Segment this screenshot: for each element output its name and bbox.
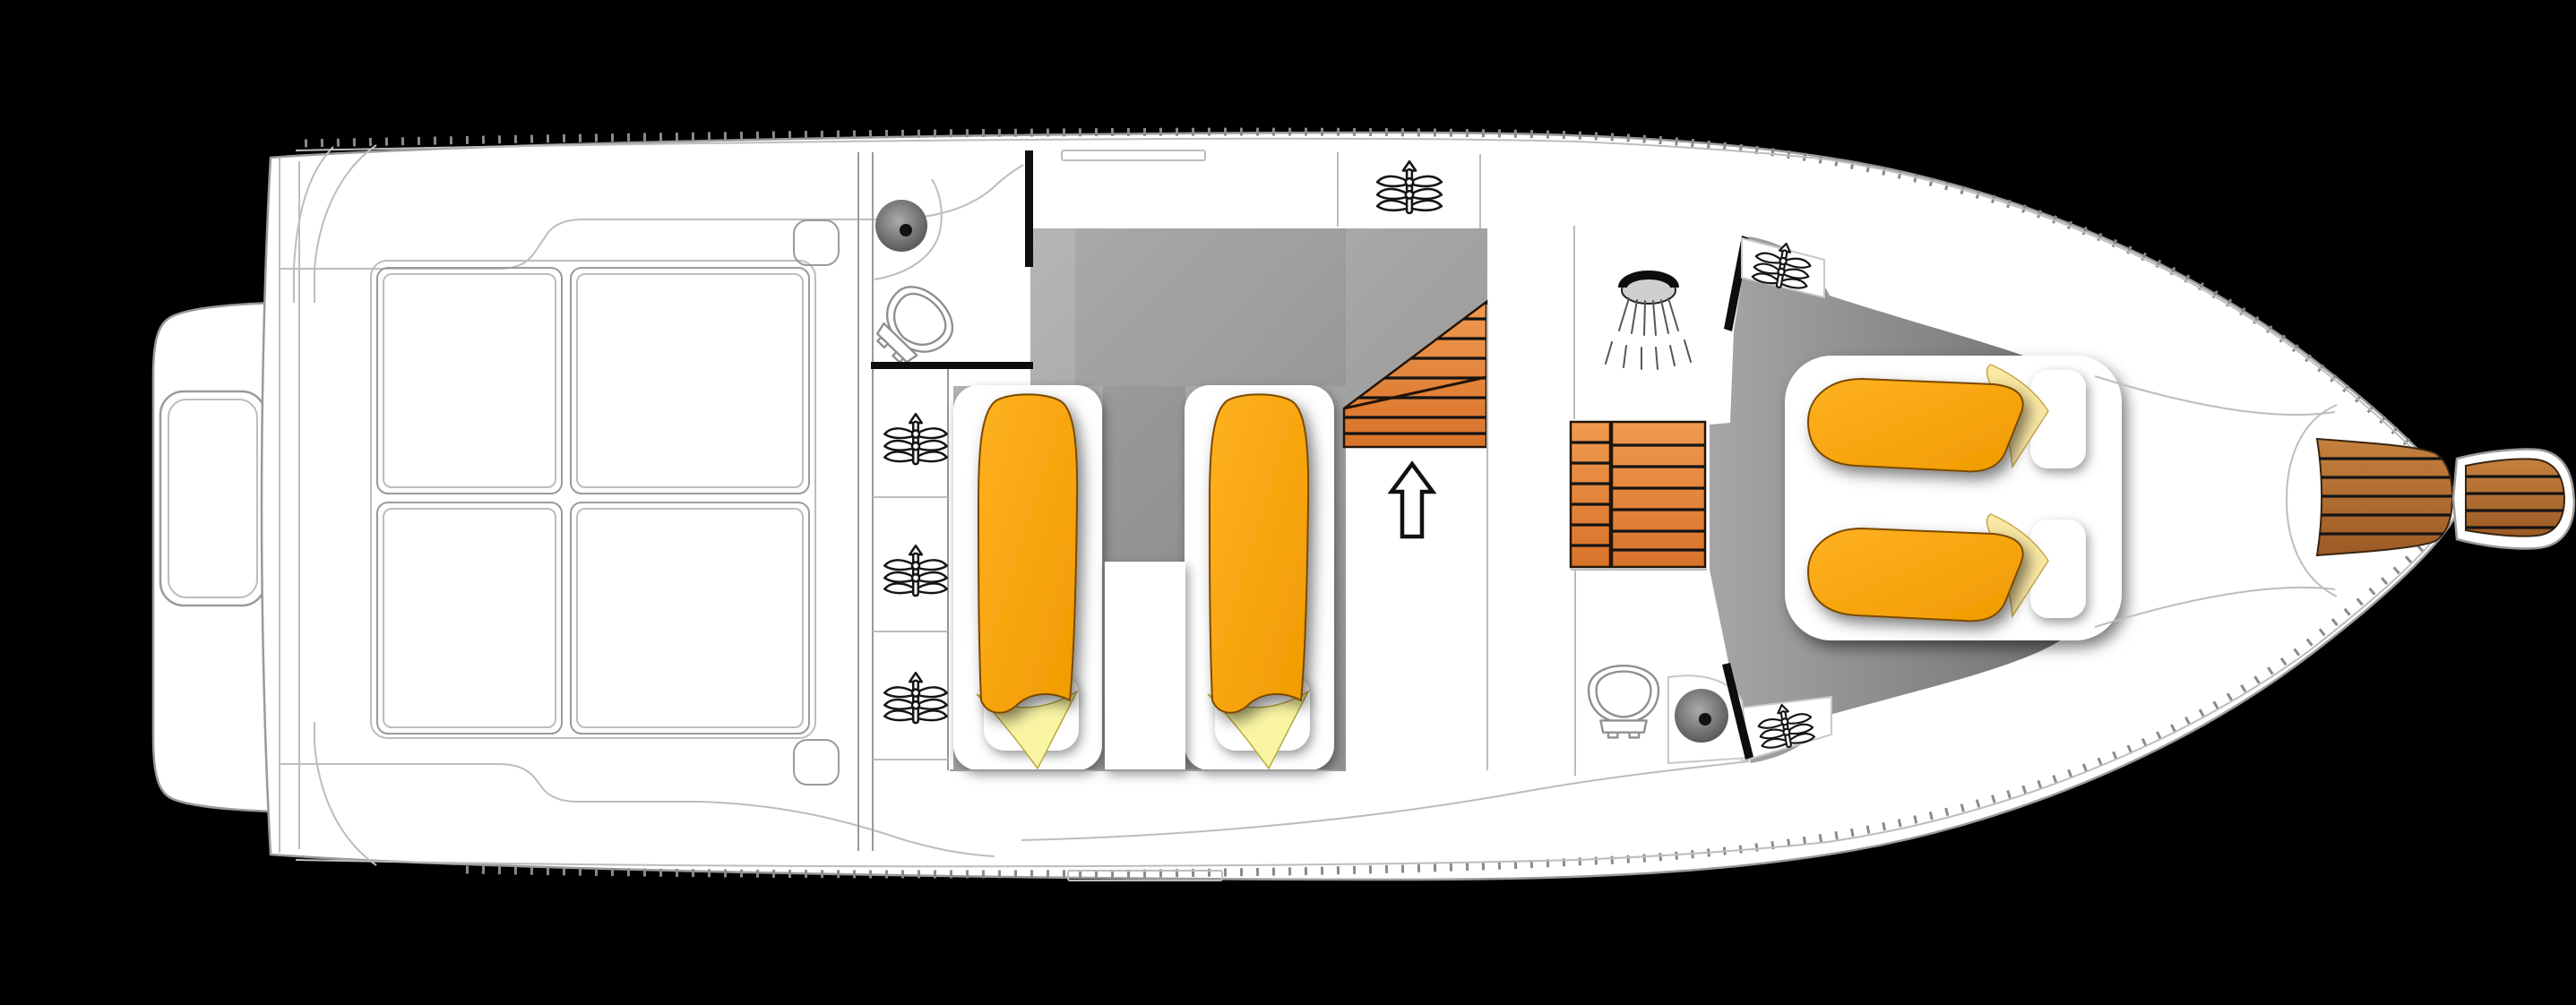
bed-dressing-starboard xyxy=(1208,394,1310,769)
staircase-mid xyxy=(1571,422,1705,567)
sink-icon xyxy=(875,200,927,252)
nightstand xyxy=(1105,562,1185,770)
yacht-deck-plan xyxy=(0,0,2576,1005)
floor-shading xyxy=(1075,228,1346,386)
floor-plan-canvas xyxy=(0,0,2576,1005)
mattress xyxy=(978,394,1077,712)
floor-shading-center xyxy=(1103,386,1185,562)
mattress xyxy=(1808,528,2023,621)
bed-dressing-port xyxy=(977,394,1079,769)
mattress xyxy=(1808,379,2023,471)
mattress xyxy=(1210,394,1308,712)
sink-drain xyxy=(900,224,912,236)
stair-column-wide xyxy=(1612,422,1705,567)
head-wall-horizontal xyxy=(871,362,1033,369)
sink-drain xyxy=(1699,713,1711,726)
swim-ladder-tab xyxy=(160,391,265,606)
head-wall-vertical xyxy=(1025,150,1033,267)
bow-pulpit-teak xyxy=(2466,459,2564,536)
